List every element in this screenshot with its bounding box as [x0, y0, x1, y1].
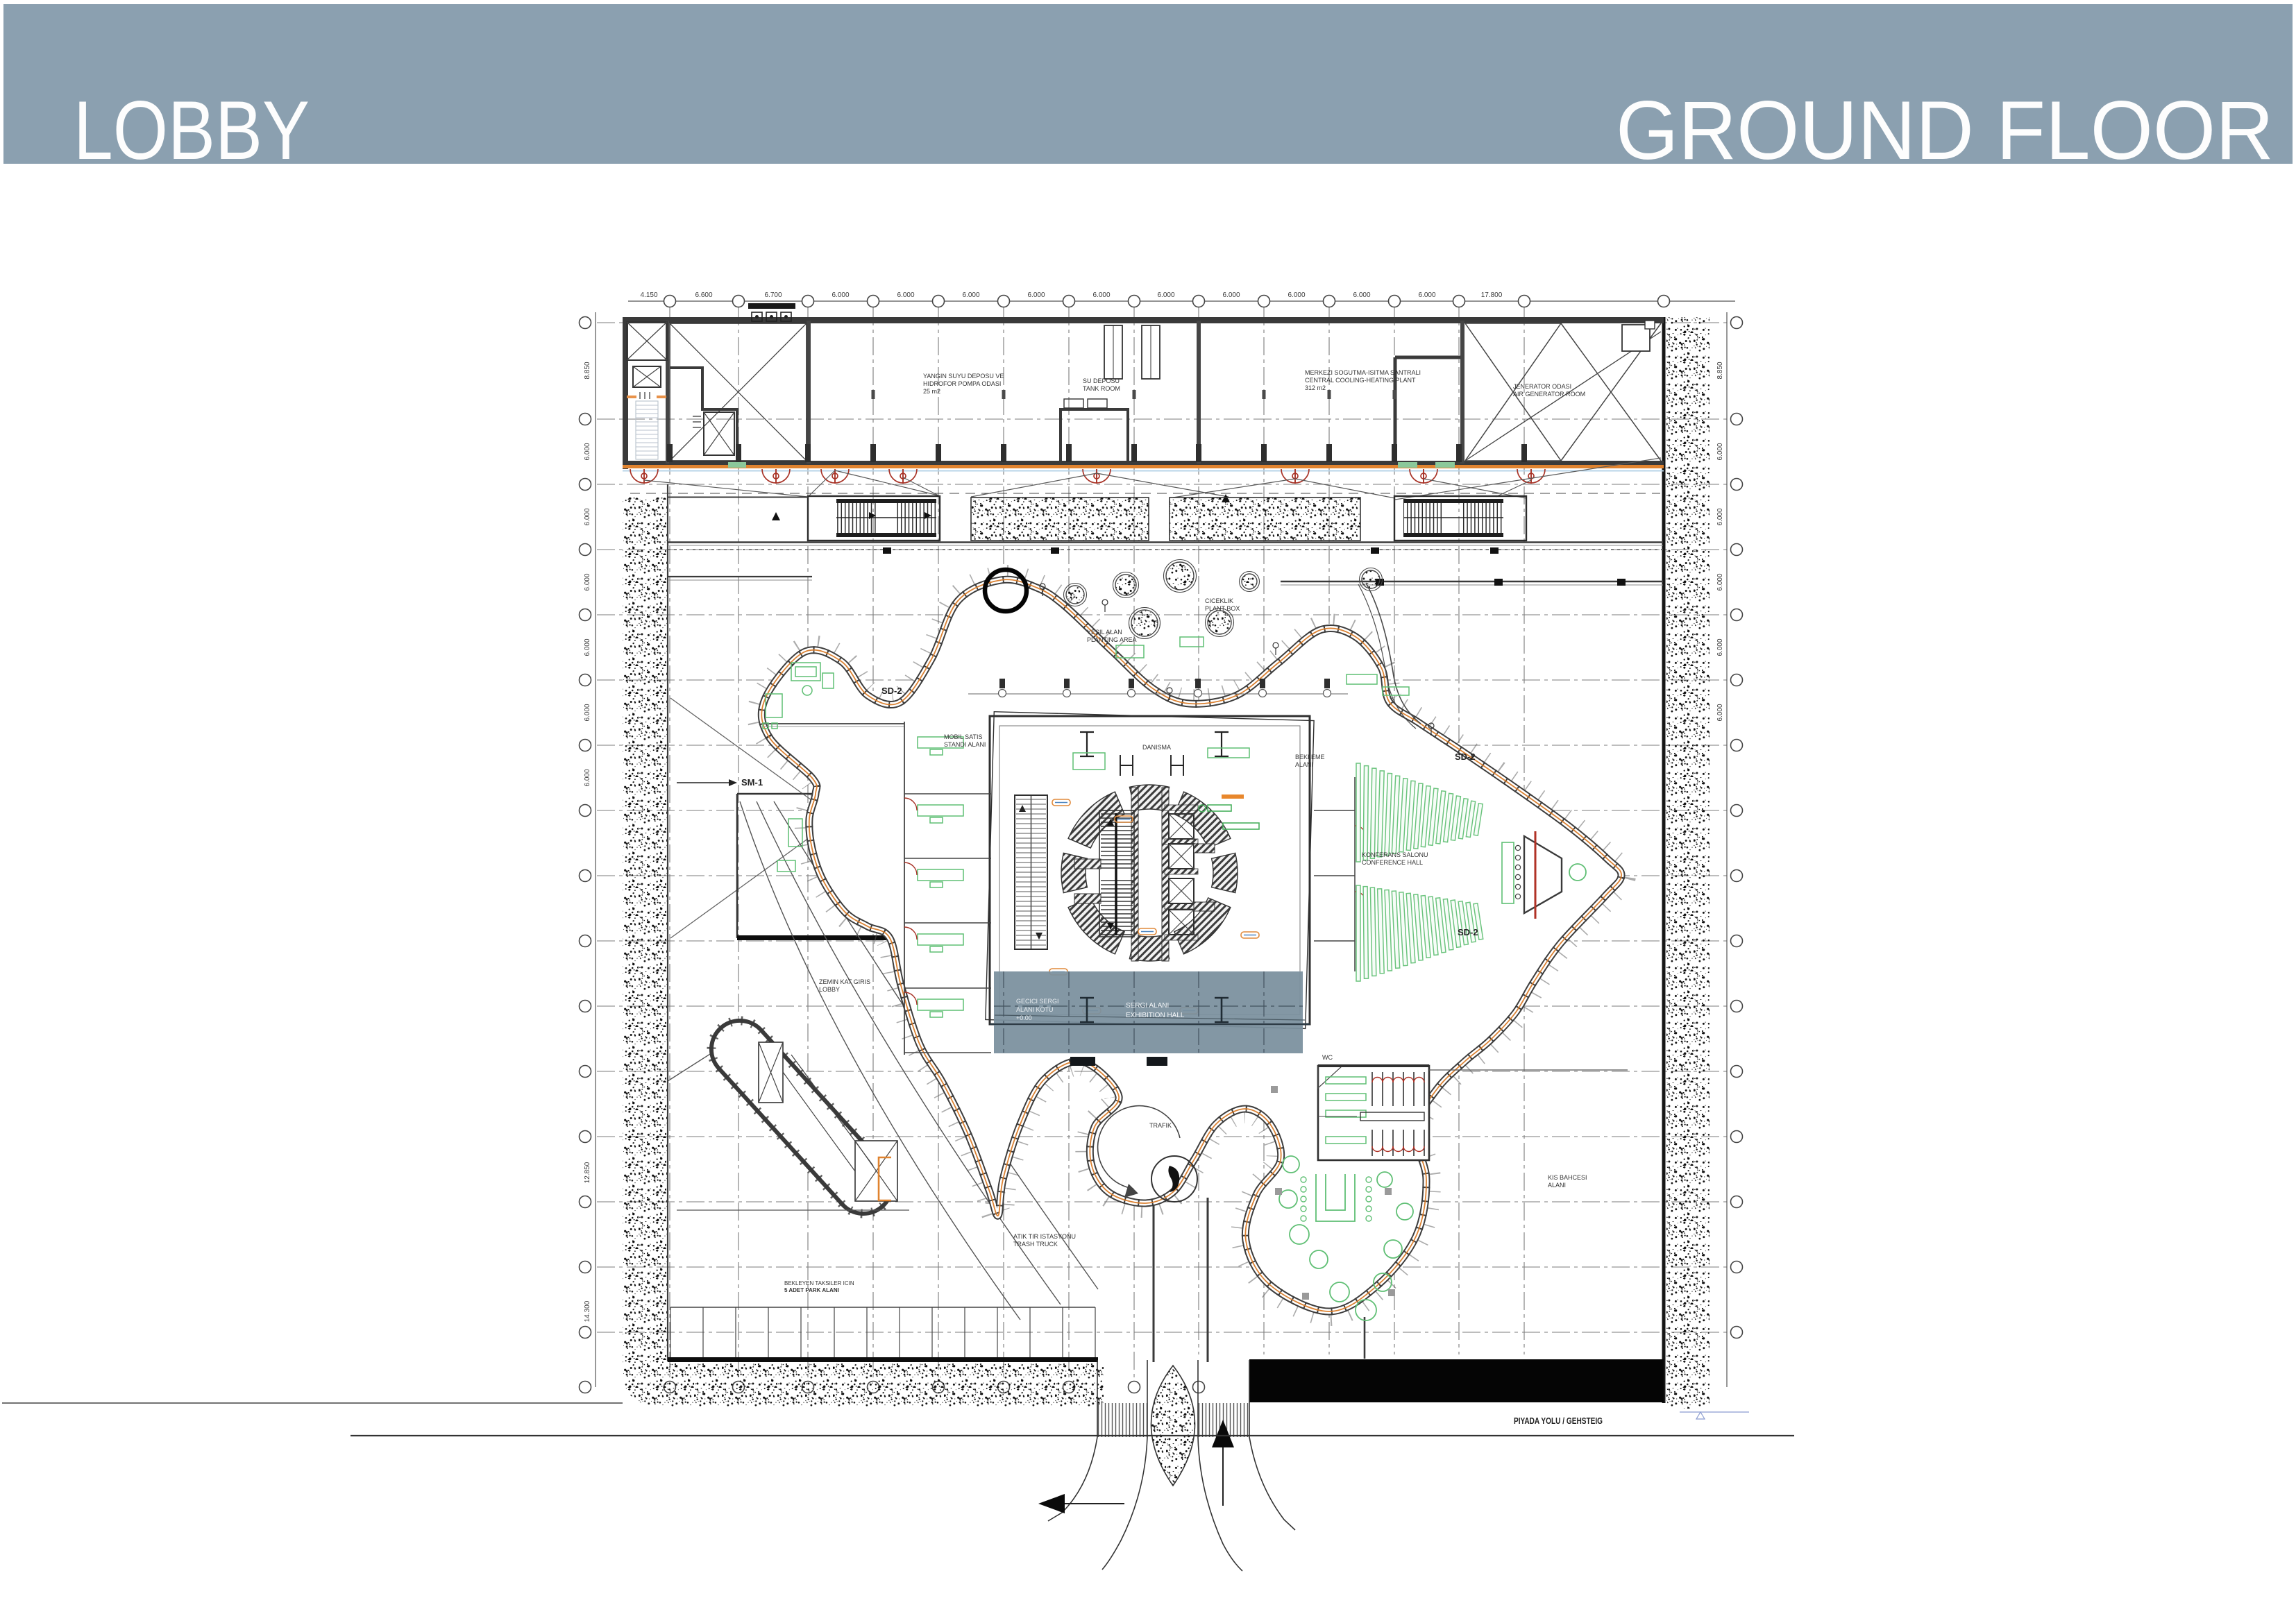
svg-text:GROUND FLOOR: GROUND FLOOR	[1616, 84, 2274, 177]
svg-text:25 m2: 25 m2	[923, 388, 940, 395]
svg-text:6.000: 6.000	[1092, 291, 1110, 299]
svg-text:6.000: 6.000	[584, 704, 591, 721]
svg-text:ZEMIN KAT GIRIS: ZEMIN KAT GIRIS	[819, 978, 870, 985]
svg-text:KONFERANS SALONU: KONFERANS SALONU	[1362, 851, 1428, 858]
svg-text:YANGIN SUYU DEPOSU VE: YANGIN SUYU DEPOSU VE	[923, 373, 1004, 380]
svg-text:LOBBY: LOBBY	[74, 84, 310, 177]
svg-text:6.000: 6.000	[1716, 704, 1724, 721]
svg-text:TRASH TRUCK: TRASH TRUCK	[1013, 1241, 1058, 1248]
svg-text:6.000: 6.000	[1027, 291, 1045, 299]
svg-text:12.850: 12.850	[584, 1162, 591, 1183]
svg-text:KIS BAHCESI: KIS BAHCESI	[1548, 1174, 1587, 1181]
svg-text:PLANT BOX: PLANT BOX	[1205, 605, 1240, 612]
svg-text:CONFERENCE HALL: CONFERENCE HALL	[1362, 859, 1423, 866]
svg-text:JENERATOR ODASI: JENERATOR ODASI	[1513, 383, 1571, 390]
svg-text:SD-2: SD-2	[1458, 927, 1478, 937]
svg-text:CICEKLIK: CICEKLIK	[1205, 597, 1233, 604]
svg-text:SU DEPOSU: SU DEPOSU	[1083, 377, 1120, 384]
svg-text:6.000: 6.000	[584, 508, 591, 525]
svg-text:DANISMA: DANISMA	[1142, 744, 1171, 751]
svg-text:14.300: 14.300	[584, 1300, 591, 1322]
svg-text:SD-2: SD-2	[881, 686, 902, 696]
svg-text:312 m2: 312 m2	[1305, 384, 1326, 391]
svg-text:6.000: 6.000	[897, 291, 914, 299]
svg-text:MOBIL SATIS: MOBIL SATIS	[944, 733, 983, 740]
svg-text:6.000: 6.000	[1222, 291, 1240, 299]
svg-text:6.000: 6.000	[962, 291, 979, 299]
svg-text:STANDI ALANI: STANDI ALANI	[944, 741, 986, 748]
svg-text:GECICI SERGI: GECICI SERGI	[1016, 998, 1059, 1005]
svg-text:6.700: 6.700	[764, 291, 782, 299]
svg-text:4.150: 4.150	[640, 291, 657, 299]
svg-text:YESIL ALAN: YESIL ALAN	[1087, 629, 1122, 636]
svg-text:LOBBY: LOBBY	[819, 986, 840, 993]
svg-text:BEKLEME: BEKLEME	[1295, 754, 1325, 760]
svg-text:ALANI: ALANI	[1295, 761, 1313, 768]
svg-text:SERGI ALANI: SERGI ALANI	[1126, 1002, 1169, 1010]
svg-text:6.000: 6.000	[584, 638, 591, 656]
svg-text:SD-2: SD-2	[1455, 751, 1476, 762]
svg-text:6.000: 6.000	[1418, 291, 1435, 299]
svg-text:ALANI: ALANI	[1548, 1182, 1566, 1189]
svg-text:AIR GENERATOR ROOM: AIR GENERATOR ROOM	[1513, 391, 1585, 398]
svg-text:BEKLEYEN TAKSILER ICIN: BEKLEYEN TAKSILER ICIN	[784, 1280, 854, 1286]
svg-text:6.000: 6.000	[1288, 291, 1305, 299]
svg-text:6.000: 6.000	[1353, 291, 1370, 299]
svg-text:17.800: 17.800	[1481, 291, 1503, 299]
svg-text:6.600: 6.600	[695, 291, 712, 299]
svg-text:HIDROFOR POMPA ODASI: HIDROFOR POMPA ODASI	[923, 380, 1001, 387]
svg-text:6.000: 6.000	[1716, 508, 1724, 525]
svg-text:6.000: 6.000	[584, 443, 591, 460]
svg-text:6.000: 6.000	[1157, 291, 1174, 299]
svg-text:6.000: 6.000	[1716, 443, 1724, 460]
svg-text:SM-1: SM-1	[741, 777, 763, 788]
svg-text:TANK ROOM: TANK ROOM	[1083, 385, 1120, 392]
svg-text:MERKEZI SOGUTMA-ISITMA SANTRAL: MERKEZI SOGUTMA-ISITMA SANTRALI	[1305, 369, 1421, 376]
svg-text:PIYADA YOLU / GEHSTEIG: PIYADA YOLU / GEHSTEIG	[1514, 1416, 1603, 1426]
svg-text:TRAFIK: TRAFIK	[1149, 1122, 1172, 1129]
svg-text:PLANTING AREA: PLANTING AREA	[1087, 636, 1137, 643]
svg-text:8.850: 8.850	[1716, 362, 1724, 379]
svg-text:CENTRAL COOLING-HEATING PLANT: CENTRAL COOLING-HEATING PLANT	[1305, 377, 1416, 384]
svg-text:6.000: 6.000	[584, 573, 591, 590]
svg-text:6.000: 6.000	[1716, 638, 1724, 656]
svg-text:+0.00: +0.00	[1016, 1014, 1032, 1021]
svg-text:EXHIBITION HALL: EXHIBITION HALL	[1126, 1012, 1185, 1019]
svg-text:ALANI KOTU: ALANI KOTU	[1016, 1006, 1054, 1013]
svg-text:WC: WC	[1322, 1054, 1333, 1061]
svg-text:6.000: 6.000	[584, 769, 591, 786]
svg-text:6.000: 6.000	[1716, 573, 1724, 590]
svg-text:ATIK TIR ISTASYONU: ATIK TIR ISTASYONU	[1013, 1233, 1076, 1240]
svg-text:5 ADET PARK ALANI: 5 ADET PARK ALANI	[784, 1287, 839, 1293]
svg-text:6.000: 6.000	[832, 291, 849, 299]
svg-text:8.850: 8.850	[584, 362, 591, 379]
